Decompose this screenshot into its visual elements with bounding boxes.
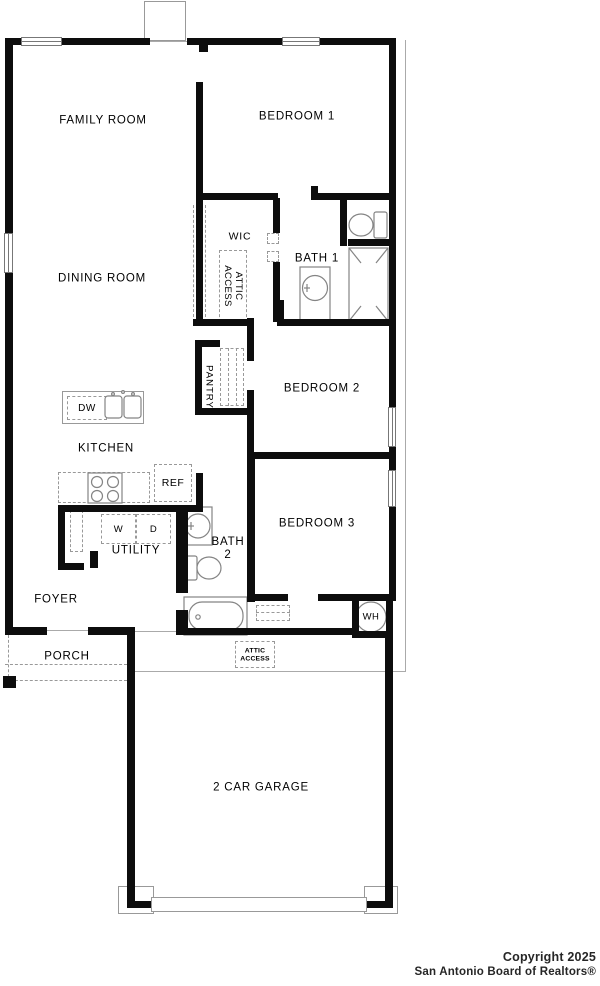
wall: [247, 318, 254, 361]
room-label-bedroom-1: BEDROOM 1: [259, 111, 335, 124]
wall: [389, 38, 396, 407]
room-label-garage: 2 CAR GARAGE: [213, 782, 309, 795]
wall: [127, 632, 135, 908]
room-label-pantry: PANTRY: [203, 365, 216, 409]
attic-access-wic-line1: ATTIC: [233, 272, 244, 301]
wall: [176, 628, 356, 635]
wall: [195, 347, 202, 408]
wall: [196, 82, 203, 200]
bath1-sink-icon: [300, 267, 330, 323]
wall: [176, 505, 188, 593]
wall: [247, 459, 255, 602]
window: [282, 37, 320, 46]
wall: [311, 186, 318, 193]
wall: [5, 45, 13, 233]
wall: [90, 551, 98, 568]
room-label-wic: WIC: [229, 231, 252, 244]
wall: [247, 390, 254, 459]
attic-access-wic-line2: ACCESS: [222, 265, 233, 306]
wall: [277, 319, 396, 326]
bath-2-line1: BATH: [211, 536, 244, 548]
wall: [389, 507, 396, 601]
fixtures-layer: [0, 0, 600, 986]
kitchen-sink-icon: [105, 391, 141, 418]
copyright-line-2: San Antonio Board of Realtors®: [415, 966, 596, 978]
wall: [199, 45, 208, 52]
attic-access-hall-line1: ATTIC: [245, 648, 266, 655]
window: [388, 407, 396, 447]
room-label-foyer: FOYER: [34, 594, 78, 607]
attic-access-hall-line2: ACCESS: [240, 655, 270, 662]
room-label-bath-1: BATH 1: [295, 253, 339, 266]
stove-icon: [88, 473, 122, 503]
wall: [193, 319, 253, 326]
window: [388, 470, 396, 507]
floor-plan: DW REF W D: [0, 0, 600, 986]
room-label-dining-room: DINING ROOM: [58, 273, 146, 286]
wall: [196, 193, 278, 200]
wall: [195, 408, 253, 415]
wall: [273, 198, 280, 233]
wall: [5, 273, 13, 635]
wall: [320, 38, 396, 45]
bath-2-line2: 2: [224, 549, 231, 561]
room-label-bath-2: BATH 2: [211, 536, 244, 562]
room-label-kitchen: KITCHEN: [78, 443, 134, 456]
window: [21, 37, 62, 46]
wall: [252, 594, 288, 601]
wall: [340, 200, 347, 246]
room-label-porch: PORCH: [44, 651, 90, 664]
bath2-sink-icon: [184, 507, 212, 545]
wall: [58, 505, 65, 570]
garage-door: [151, 897, 367, 912]
bath1-toilet-icon: [349, 212, 387, 238]
water-heater-label: WH: [363, 611, 380, 624]
wall: [195, 340, 220, 347]
wall: [348, 239, 396, 246]
wall: [58, 563, 84, 570]
wall: [385, 638, 393, 908]
wall: [196, 200, 203, 326]
wall: [187, 38, 282, 45]
room-label-utility: UTILITY: [112, 545, 160, 558]
window: [4, 233, 13, 273]
wall: [311, 193, 396, 200]
wall: [62, 38, 150, 45]
wall: [252, 452, 396, 459]
wall: [5, 38, 21, 45]
wall: [277, 300, 284, 319]
copyright-line-1: Copyright 2025: [503, 950, 596, 964]
porch-post: [3, 676, 16, 688]
room-label-bedroom-2: BEDROOM 2: [284, 383, 360, 396]
attic-access-label-wic: ATTIC ACCESS: [222, 265, 244, 306]
room-label-bedroom-3: BEDROOM 3: [279, 518, 355, 531]
attic-access-label-hall: ATTIC ACCESS: [240, 648, 270, 663]
bath1-shower-icon: [349, 248, 388, 321]
room-label-family-room: FAMILY ROOM: [59, 115, 147, 128]
wall: [352, 631, 393, 638]
wall: [5, 627, 47, 635]
